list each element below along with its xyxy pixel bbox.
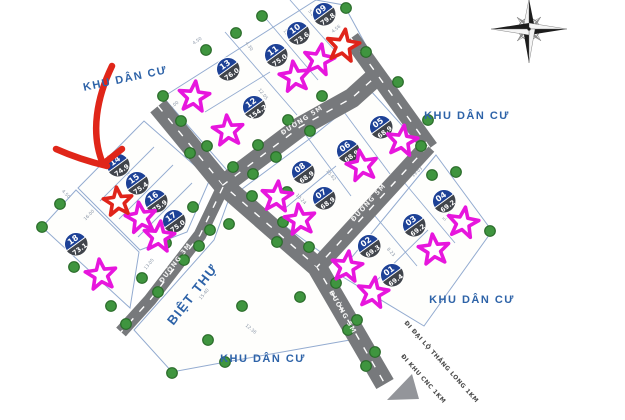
tree-icon (361, 47, 372, 58)
tree-icon (202, 141, 213, 152)
tree-icon (176, 116, 187, 127)
compass-point (491, 29, 529, 35)
tree-icon (194, 241, 205, 252)
tree-icon (201, 45, 212, 56)
dimension-label: 13.05 (143, 257, 156, 271)
tree-icon (153, 287, 164, 298)
tree-icon (272, 237, 283, 248)
tree-icon (248, 169, 259, 180)
compass-center (527, 27, 530, 30)
tree-icon (393, 77, 404, 88)
tree-icon (253, 140, 264, 151)
tree-icon (305, 126, 316, 137)
tree-icon (361, 361, 372, 372)
land-plot-map: 4.504.3015.215.004.5615.0016.3612.055.08… (0, 0, 625, 420)
tree-icon (205, 225, 216, 236)
tree-icon (427, 170, 438, 181)
tree-icon (228, 162, 239, 173)
tree-icon (106, 301, 117, 312)
tree-icon (185, 148, 196, 159)
tree-icon (271, 152, 282, 163)
tree-icon (167, 368, 178, 379)
tree-icon (237, 301, 248, 312)
tree-icon (416, 141, 427, 152)
tree-icon (188, 202, 199, 213)
tree-icon (158, 91, 169, 102)
tree-icon (370, 347, 381, 358)
tree-icon (257, 11, 268, 22)
region-label: KHU DÂN CƯ (220, 352, 306, 365)
compass-point (529, 29, 535, 63)
dimension-label: 4.50 (192, 36, 204, 47)
tree-icon (231, 28, 242, 39)
tree-icon (55, 199, 66, 210)
tree-icon (224, 219, 235, 230)
tree-icon (304, 242, 315, 253)
tree-icon (69, 262, 80, 273)
tree-icon (247, 191, 258, 202)
compass-point (529, 23, 567, 29)
region-label: KHU DÂN CƯ (82, 63, 169, 94)
region-label: KHU DÂN CƯ (429, 293, 515, 306)
tree-icon (317, 91, 328, 102)
tree-icon (341, 3, 352, 14)
compass-rose-icon (491, 0, 567, 63)
tree-icon (203, 335, 214, 346)
region-label: KHU DÂN CƯ (424, 109, 510, 122)
tree-icon (37, 222, 48, 233)
tree-icon (451, 167, 462, 178)
map-canvas: 4.504.3015.215.004.5615.0016.3612.055.08… (0, 0, 625, 420)
tree-icon (137, 273, 148, 284)
tree-icon (295, 292, 306, 303)
compass-layer (491, 0, 567, 63)
tree-icon (485, 226, 496, 237)
tree-icon (121, 319, 132, 330)
